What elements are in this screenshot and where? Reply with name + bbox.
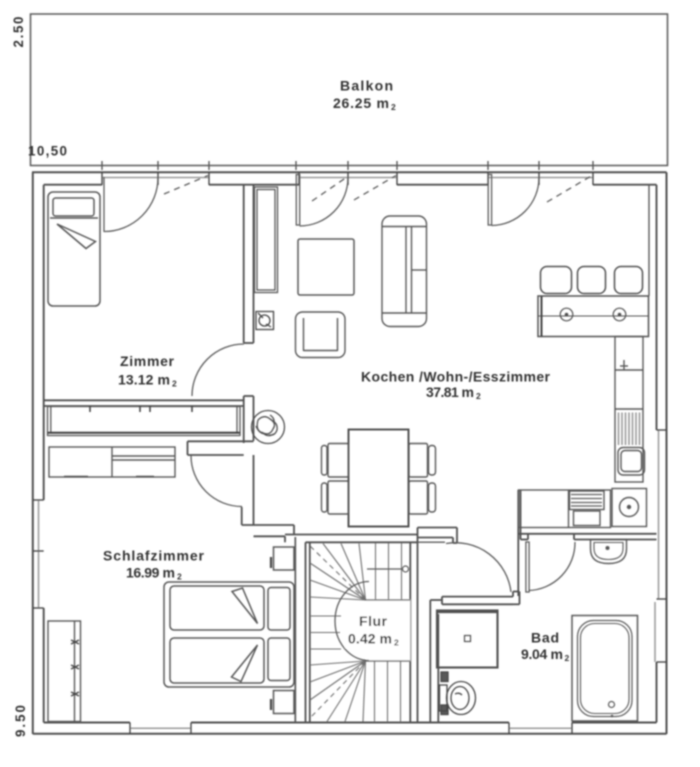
svg-text:Schlafzimmer: Schlafzimmer (103, 548, 205, 564)
svg-text:Bad: Bad (531, 630, 559, 646)
svg-text:2: 2 (391, 102, 396, 112)
svg-text:9.04 m: 9.04 m (521, 646, 563, 662)
svg-text:37.81 m: 37.81 m (426, 384, 474, 400)
svg-text:2: 2 (172, 379, 177, 389)
svg-text:2.50: 2.50 (11, 17, 26, 48)
svg-text:26.25 m: 26.25 m (333, 95, 389, 111)
svg-text:9.50: 9.50 (13, 705, 28, 737)
svg-text:13.12 m: 13.12 m (118, 372, 170, 388)
svg-text:Balkon: Balkon (340, 78, 393, 94)
svg-text:16.99 m: 16.99 m (126, 565, 175, 581)
svg-text:Zimmer: Zimmer (120, 353, 175, 369)
svg-text:0.42 m: 0.42 m (348, 631, 392, 647)
svg-text:Kochen /Wohn-/Esszimmer: Kochen /Wohn-/Esszimmer (361, 369, 551, 385)
svg-text:Flur: Flur (359, 613, 388, 629)
svg-text:2: 2 (565, 653, 570, 663)
svg-text:10,50: 10,50 (28, 144, 67, 159)
svg-text:2: 2 (394, 638, 399, 648)
svg-text:2: 2 (177, 572, 182, 582)
svg-text:2: 2 (476, 391, 481, 401)
